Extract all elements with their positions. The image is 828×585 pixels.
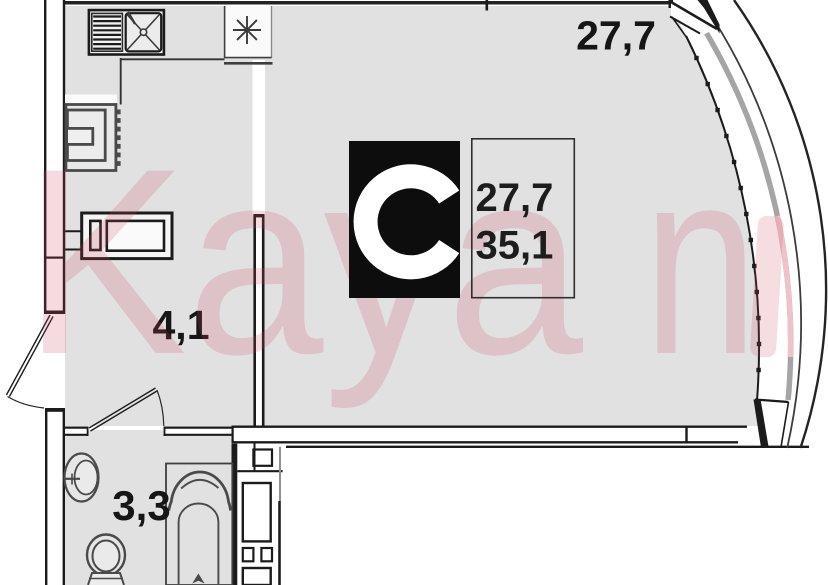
svg-text:3,3: 3,3 [112,482,170,529]
svg-text:35,1: 35,1 [476,224,554,268]
svg-text:27,7: 27,7 [476,176,554,220]
svg-text:27,7: 27,7 [576,13,656,59]
svg-text:n: n [643,114,758,410]
